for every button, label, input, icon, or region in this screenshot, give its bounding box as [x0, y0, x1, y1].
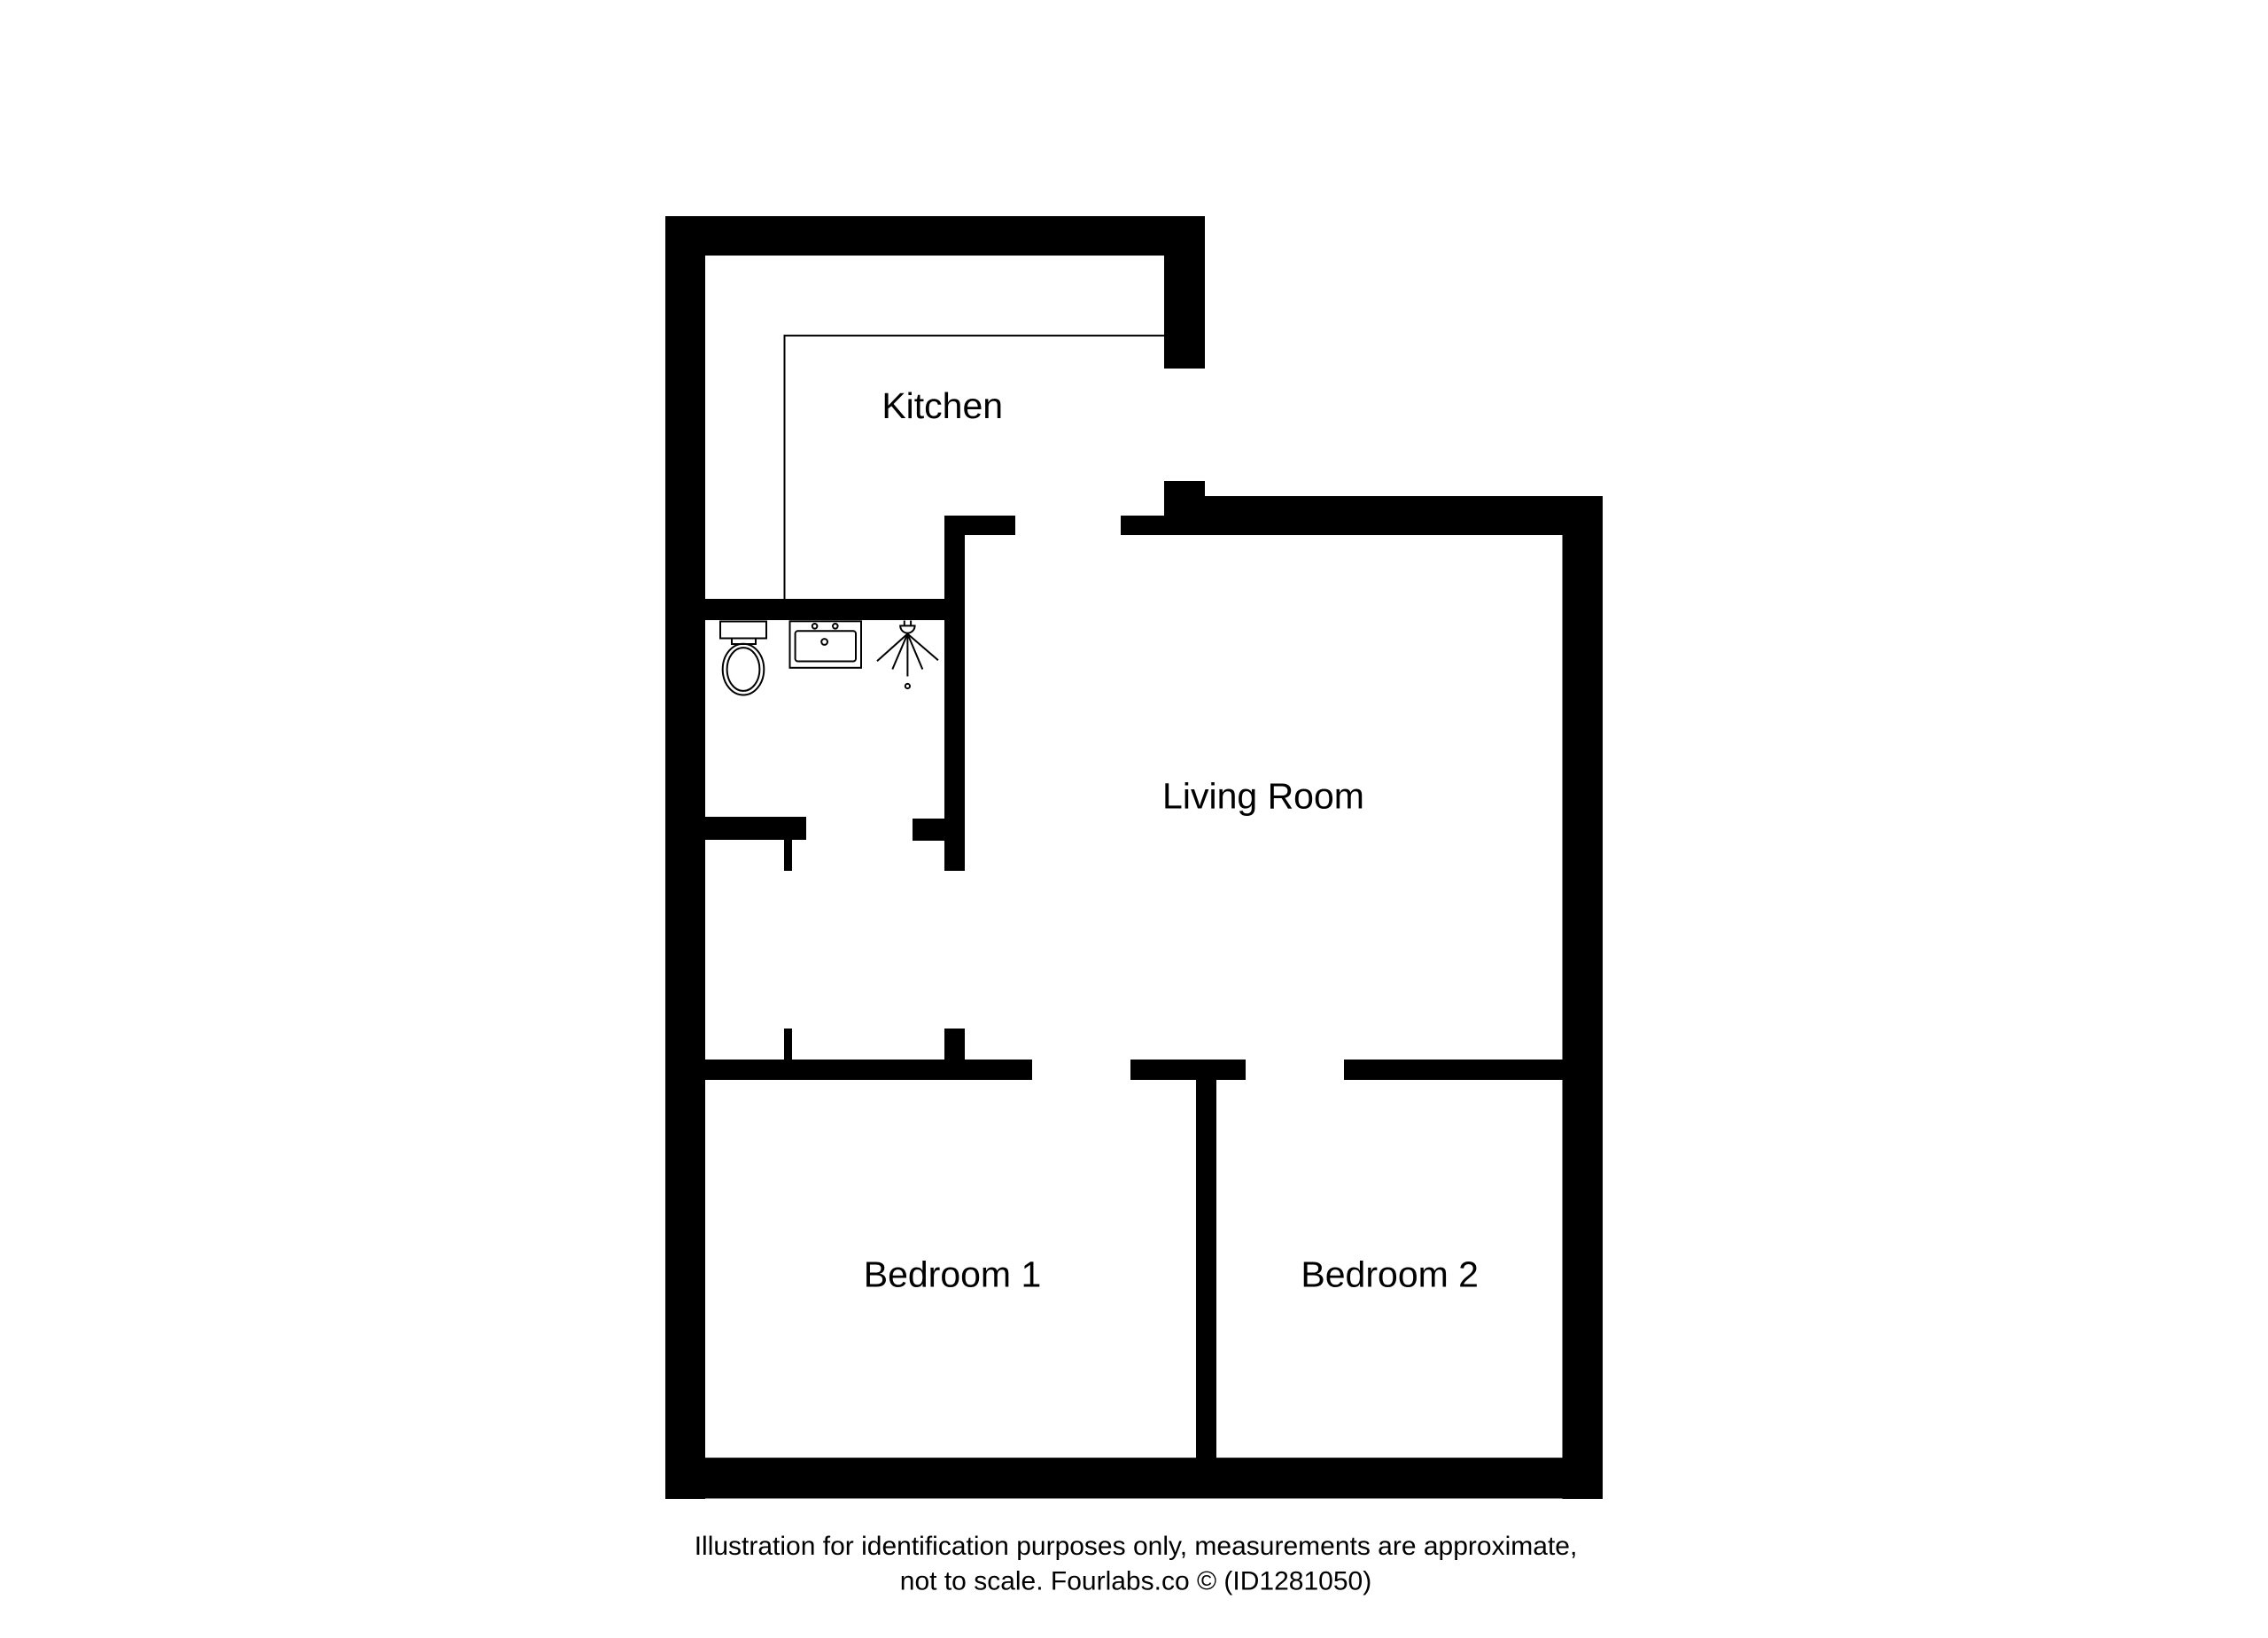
svg-text:Living Room: Living Room — [1162, 776, 1364, 817]
svg-text:Kitchen: Kitchen — [882, 385, 1003, 426]
svg-text:Bedroom 1: Bedroom 1 — [864, 1254, 1042, 1294]
svg-text:Bedroom 2: Bedroom 2 — [1301, 1254, 1479, 1294]
svg-text:not to scale. Fourlabs.co © (I: not to scale. Fourlabs.co © (ID1281050) — [900, 1567, 1371, 1596]
svg-text:Illustration for identificatio: Illustration for identification purposes… — [695, 1532, 1578, 1561]
